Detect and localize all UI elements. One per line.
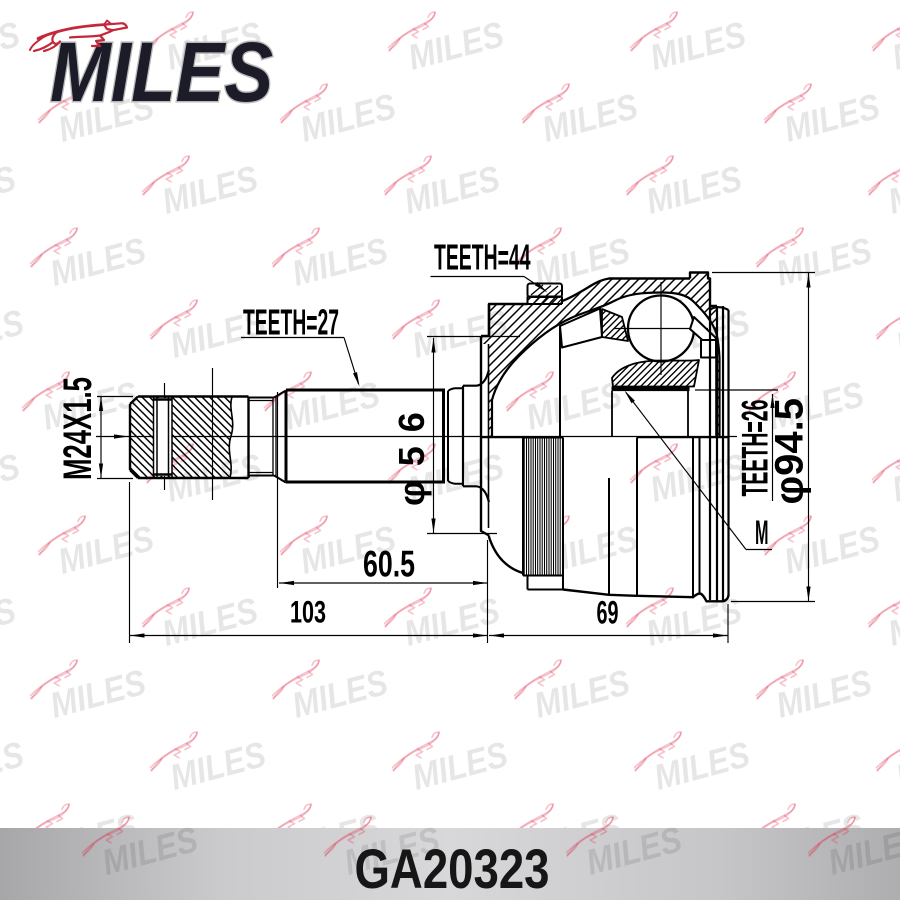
svg-text:103: 103 [290, 594, 326, 630]
svg-text:60.5: 60.5 [363, 544, 415, 585]
svg-text:TEETH=44: TEETH=44 [434, 237, 531, 278]
svg-text:TEETH=27: TEETH=27 [243, 302, 339, 343]
svg-text:MILES: MILES [50, 25, 273, 119]
svg-text:69: 69 [597, 595, 619, 631]
svg-text:φ94.5: φ94.5 [768, 398, 812, 504]
svg-text:φ56: φ56 [391, 398, 432, 506]
svg-text:M24X1.5: M24X1.5 [56, 377, 100, 480]
svg-text:M: M [755, 514, 769, 552]
svg-text:GA20323: GA20323 [355, 838, 550, 900]
